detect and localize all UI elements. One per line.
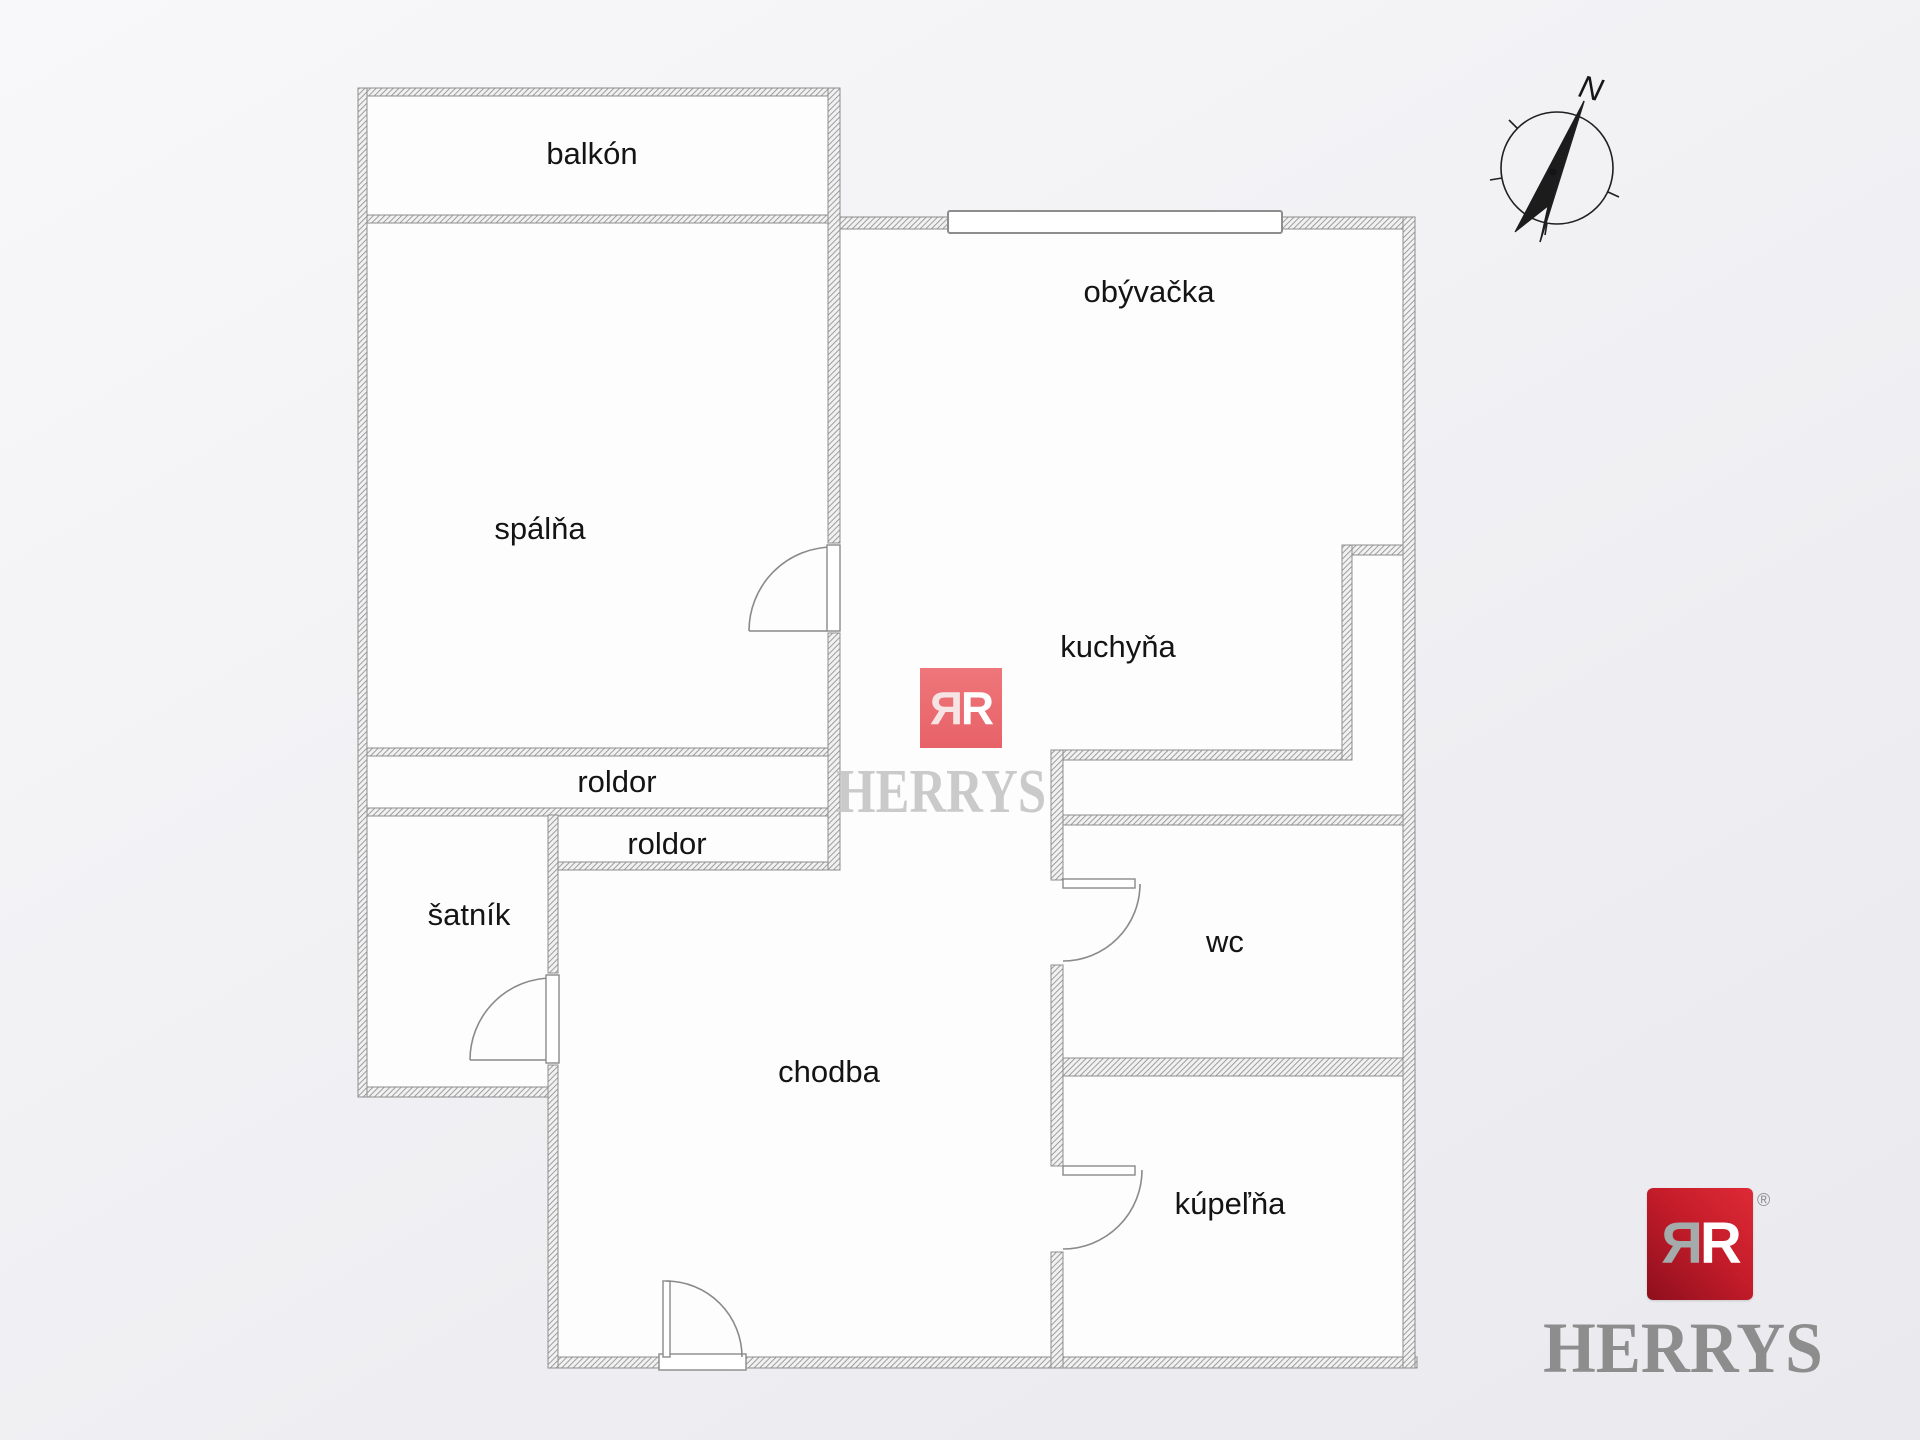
room-label-obyvacka: obývačka — [1084, 274, 1216, 309]
room-label-roldor-1: roldor — [577, 764, 656, 799]
room-label-kuchyna: kuchyňa — [1060, 629, 1176, 664]
watermark-brand-name: HERRYS — [836, 761, 1066, 823]
compass-icon: N — [1490, 68, 1619, 242]
watermark-logo-square: ЯR — [920, 668, 1002, 748]
brand-logo-square: ЯR — [1647, 1188, 1753, 1300]
floor-plan-page: balkón spálňa obývačka kuchyňa roldor ro… — [0, 0, 1920, 1440]
watermark-monogram-r: R — [961, 685, 992, 731]
room-label-roldor-2: roldor — [627, 826, 706, 861]
brand-name: HERRYS — [1526, 1312, 1840, 1384]
apartment-outline — [358, 88, 1415, 1368]
room-label-chodba: chodba — [778, 1054, 880, 1089]
registered-trademark-icon: ® — [1757, 1190, 1770, 1211]
brand-monogram-ya: Я — [1661, 1215, 1700, 1273]
watermark-monogram-ya: Я — [930, 685, 961, 731]
room-label-satnik: šatník — [428, 897, 511, 932]
compass-center-dot — [1550, 169, 1557, 176]
room-label-kupelna: kúpeľňa — [1175, 1186, 1286, 1221]
room-label-spalna: spálňa — [494, 511, 586, 546]
window — [948, 211, 1282, 233]
room-label-balkon: balkón — [546, 136, 637, 171]
compass-north-label: N — [1575, 68, 1607, 109]
brand-monogram-r: R — [1700, 1215, 1739, 1273]
room-label-wc: wc — [1205, 924, 1244, 959]
